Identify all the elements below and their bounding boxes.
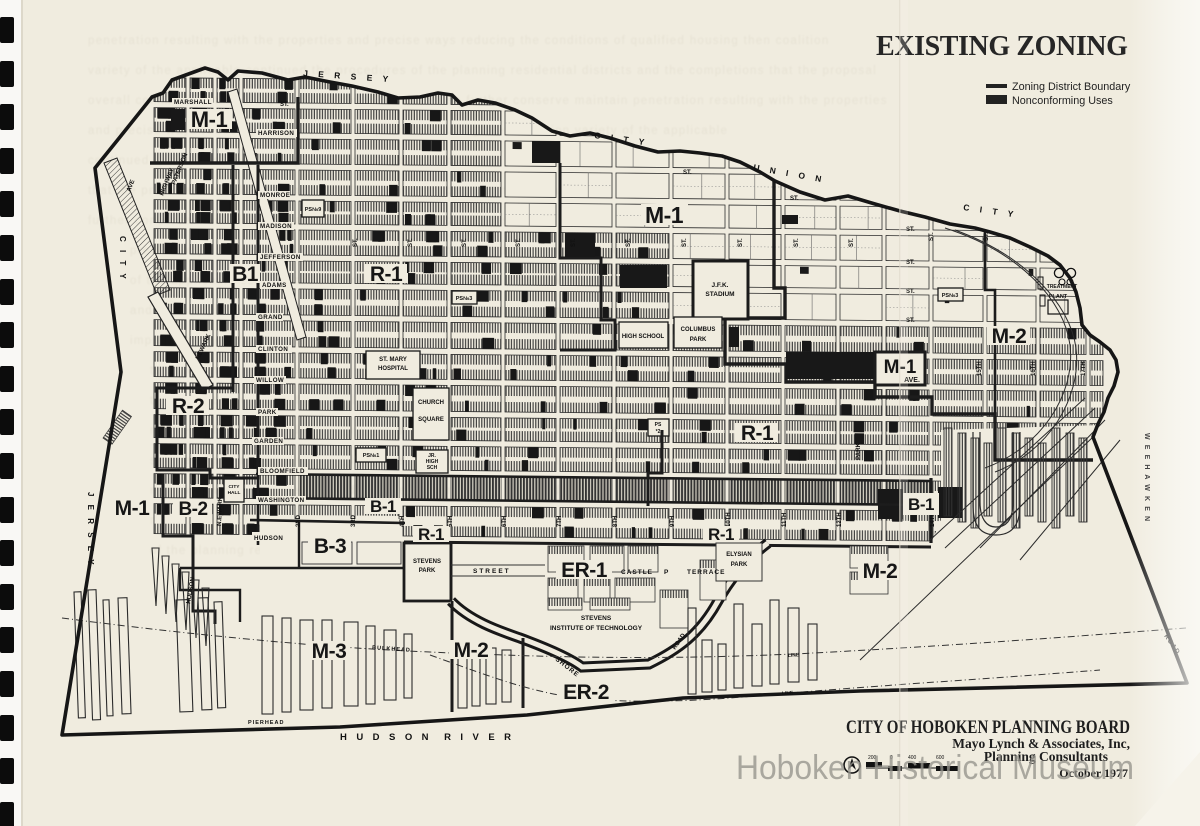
- svg-text:PS№3: PS№3: [942, 293, 959, 299]
- svg-text:ST.: ST.: [790, 196, 799, 202]
- svg-text:M-2: M-2: [454, 639, 489, 662]
- svg-text:PARK: PARK: [690, 337, 707, 343]
- svg-text:HOSPITAL: HOSPITAL: [378, 366, 408, 372]
- svg-text:HIGH SCHOOL: HIGH SCHOOL: [622, 334, 665, 340]
- svg-text:ST.: ST.: [738, 238, 744, 247]
- svg-text:ST.: ST.: [849, 238, 855, 247]
- svg-text:ST.: ST.: [280, 102, 289, 108]
- svg-text:PS: PS: [655, 422, 662, 428]
- svg-text:J.F.K.: J.F.K.: [712, 282, 729, 289]
- svg-text:17TH: 17TH: [1081, 361, 1087, 376]
- svg-text:M-1: M-1: [645, 202, 684, 228]
- svg-text:PARK: PARK: [855, 442, 862, 460]
- svg-text:HARRISON: HARRISON: [258, 130, 294, 137]
- svg-text:penetration resulting with the: penetration resulting with the propertie…: [88, 35, 830, 47]
- svg-text:WASHINGTON: WASHINGTON: [258, 497, 305, 504]
- svg-text:PARK: PARK: [419, 568, 436, 574]
- svg-text:B-2: B-2: [178, 499, 207, 520]
- svg-text:LINE: LINE: [788, 652, 800, 659]
- svg-text:7TH: 7TH: [557, 516, 563, 527]
- svg-text:BLOOMFIELD: BLOOMFIELD: [260, 468, 305, 475]
- svg-text:ST.: ST.: [626, 238, 632, 247]
- svg-text:2ND: 2ND: [296, 514, 302, 527]
- svg-text:4TH: 4TH: [400, 516, 406, 527]
- svg-text:8TH: 8TH: [613, 516, 619, 527]
- svg-text:ST.: ST.: [571, 238, 577, 247]
- svg-text:ST.: ST.: [353, 238, 359, 247]
- svg-text:ER-2: ER-2: [563, 681, 609, 704]
- svg-text:J E R S E Y: J E R S E Y: [86, 492, 95, 568]
- svg-text:Nonconforming Uses: Nonconforming Uses: [1012, 95, 1113, 107]
- svg-text:M-2: M-2: [992, 325, 1027, 348]
- svg-text:ST.: ST.: [408, 238, 414, 247]
- svg-text:B1: B1: [232, 263, 259, 286]
- svg-text:STADIUM: STADIUM: [705, 291, 734, 298]
- svg-text:R-1: R-1: [741, 422, 774, 445]
- svg-text:STEVENS: STEVENS: [413, 559, 441, 565]
- svg-text:9TH: 9TH: [670, 516, 676, 527]
- svg-text:EXISTING ZONING: EXISTING ZONING: [876, 31, 1128, 62]
- svg-text:*2: *2: [656, 429, 661, 435]
- svg-text:LINE: LINE: [782, 690, 794, 697]
- svg-text:COLUMBUS: COLUMBUS: [681, 327, 716, 333]
- svg-text:3RD: 3RD: [351, 514, 357, 527]
- svg-text:CASTLE: CASTLE: [621, 569, 653, 576]
- svg-text:HUDSON: HUDSON: [254, 535, 283, 542]
- svg-text:N.EWARK: N.EWARK: [216, 496, 224, 526]
- svg-text:HALL: HALL: [228, 490, 241, 496]
- svg-text:INSTITUTE OF TECHNOLOGY: INSTITUTE OF TECHNOLOGY: [550, 625, 643, 632]
- svg-text:CLINTON: CLINTON: [258, 346, 288, 353]
- svg-text:SQUARE: SQUARE: [418, 417, 444, 423]
- svg-text:5TH: 5TH: [448, 516, 454, 527]
- svg-text:PARK: PARK: [731, 562, 748, 568]
- svg-text:R-1: R-1: [418, 525, 444, 544]
- svg-text:C I T Y: C I T Y: [118, 236, 127, 282]
- svg-text:6TH: 6TH: [502, 516, 508, 527]
- svg-text:PS№9: PS№9: [305, 207, 322, 213]
- svg-text:MONROE: MONROE: [260, 192, 290, 199]
- svg-text:M-1: M-1: [191, 107, 228, 132]
- svg-text:P: P: [664, 569, 669, 576]
- svg-text:GARDEN: GARDEN: [254, 438, 283, 445]
- svg-text:R-2: R-2: [172, 395, 204, 418]
- svg-text:M-1: M-1: [115, 497, 150, 520]
- svg-text:B-1: B-1: [370, 497, 396, 516]
- svg-text:TERRACE: TERRACE: [687, 569, 725, 576]
- svg-text:Hoboken Historical Museum: Hoboken Historical Museum: [736, 749, 1134, 787]
- svg-text:PS№1: PS№1: [363, 453, 380, 459]
- svg-text:MARSHALL: MARSHALL: [174, 99, 212, 106]
- svg-text:ST.: ST.: [682, 238, 688, 247]
- svg-text:B-1: B-1: [908, 495, 934, 514]
- svg-text:ST.: ST.: [794, 238, 800, 247]
- svg-text:Zoning District Boundary: Zoning District Boundary: [1012, 81, 1131, 93]
- svg-text:CITY OF HOBOKEN PLANNING BOARD: CITY OF HOBOKEN PLANNING BOARD: [846, 717, 1130, 738]
- svg-text:ST.: ST.: [984, 232, 990, 241]
- svg-text:ST.: ST.: [516, 238, 522, 247]
- svg-text:CHURCH: CHURCH: [418, 400, 444, 406]
- svg-text:ELYSIAN: ELYSIAN: [726, 552, 751, 558]
- svg-text:MADISON: MADISON: [260, 223, 292, 230]
- svg-text:ST. MARY: ST. MARY: [379, 357, 407, 363]
- svg-text:CITY: CITY: [229, 484, 241, 490]
- svg-text:11TH: 11TH: [782, 513, 788, 527]
- svg-text:ST.: ST.: [929, 232, 935, 241]
- svg-text:ST.: ST.: [462, 238, 468, 247]
- svg-text:PIERHEAD: PIERHEAD: [248, 720, 284, 726]
- svg-text:GRAND: GRAND: [258, 314, 283, 321]
- svg-text:PARK: PARK: [258, 409, 277, 416]
- svg-text:SCH: SCH: [427, 465, 438, 471]
- svg-text:15TH: 15TH: [977, 361, 983, 376]
- svg-text:PS№3: PS№3: [456, 296, 473, 302]
- svg-text:12TH: 12TH: [837, 512, 843, 527]
- svg-text:ST.: ST.: [683, 170, 692, 176]
- svg-text:M-3: M-3: [312, 640, 347, 663]
- svg-text:ER-1: ER-1: [561, 559, 608, 582]
- svg-text:STEVENS: STEVENS: [581, 615, 612, 622]
- svg-text:JEFFERSON: JEFFERSON: [260, 254, 301, 261]
- svg-text:16TH: 16TH: [1031, 361, 1037, 376]
- svg-text:STREET: STREET: [473, 568, 511, 575]
- svg-text:R-1: R-1: [370, 263, 403, 286]
- svg-text:R-1: R-1: [708, 525, 734, 544]
- svg-text:H U D S O N R I V E R: H U D S O N R I V E R: [340, 732, 515, 743]
- svg-text:B-3: B-3: [314, 535, 346, 558]
- svg-text:M-2: M-2: [863, 560, 898, 583]
- svg-text:WILLOW: WILLOW: [256, 377, 284, 384]
- svg-text:ADAMS: ADAMS: [262, 282, 287, 289]
